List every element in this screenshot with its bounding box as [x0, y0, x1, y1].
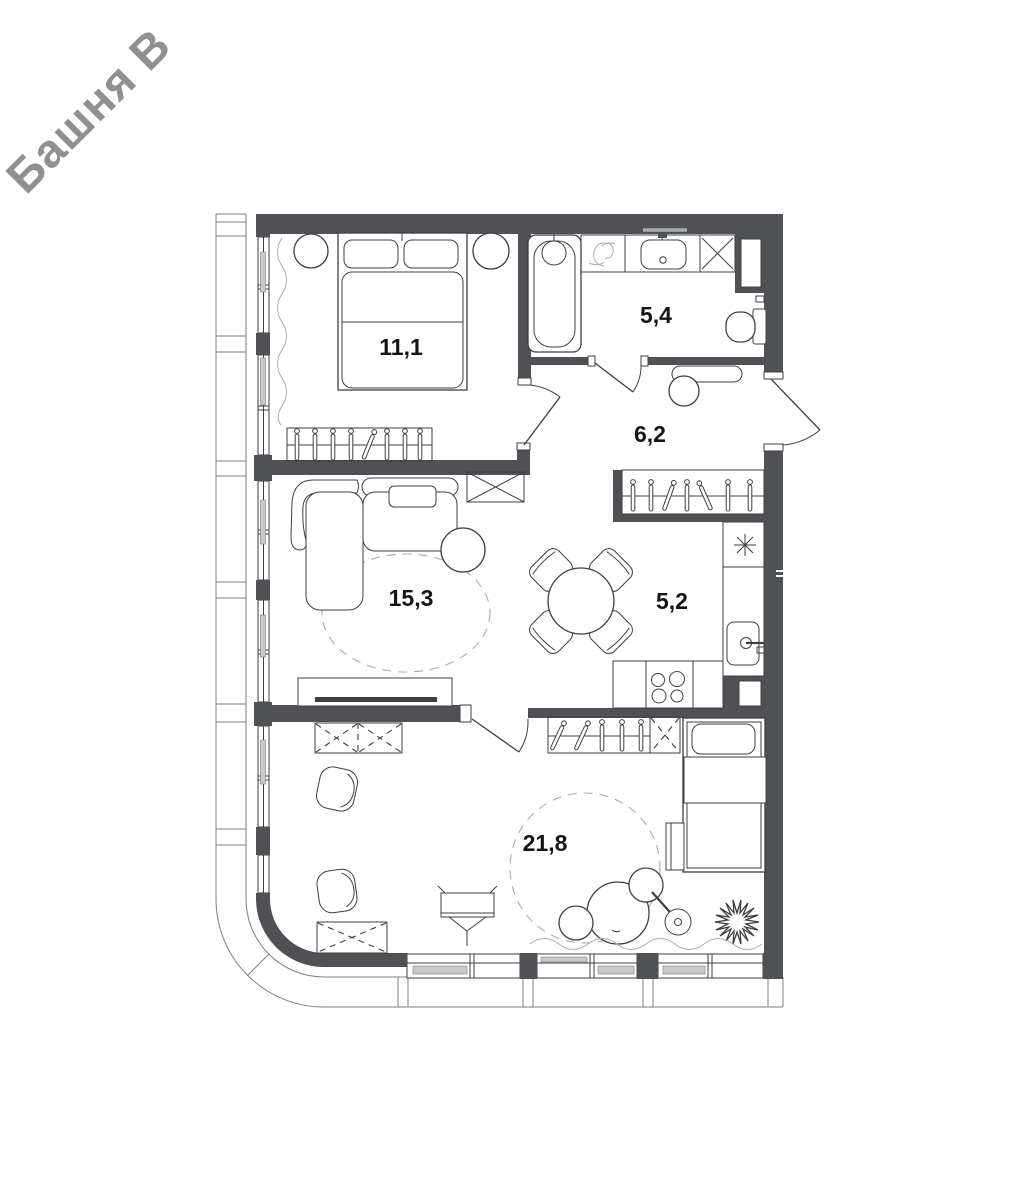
towel-dryer-icon — [589, 243, 615, 266]
towel-dryer-cell — [581, 235, 625, 272]
dining-table-icon — [526, 545, 635, 656]
facade-ledge — [216, 214, 783, 1007]
label-kitchen-area: 5,2 — [656, 588, 688, 614]
floor-lamp-icon — [438, 886, 497, 946]
windows-bottom — [407, 954, 763, 978]
single-bed-icon — [666, 718, 766, 872]
curtain-icon — [278, 238, 287, 425]
plant-icon — [715, 900, 759, 944]
vent-icon — [734, 534, 756, 556]
stool-icon — [669, 376, 699, 406]
label-bedroom2-area: 21,8 — [523, 830, 568, 856]
tower-watermark: Башня В — [0, 18, 181, 203]
bathtub-icon — [528, 233, 581, 352]
wardrobe-icon — [287, 428, 432, 461]
cabinet-icon — [315, 723, 402, 753]
cabinet-icon — [317, 922, 387, 953]
kitchen-counter-icon — [723, 522, 764, 676]
hall-wardrobe-icon — [622, 470, 764, 514]
label-bedroom-area: 11,1 — [379, 334, 423, 360]
armchair-icon — [315, 868, 358, 915]
toilet-icon — [726, 296, 766, 344]
floor-plan-page: 11,1 5,4 6,2 15,3 5,2 21,8 Башня В — [0, 0, 1015, 1200]
label-hallway-area: 6,2 — [634, 421, 666, 447]
cabinet-icon — [467, 472, 524, 502]
armchair-icon — [314, 765, 360, 814]
nightstand-icon — [473, 233, 509, 269]
bathroom-door — [588, 356, 648, 392]
entrance-door — [764, 372, 820, 451]
floor-plan: 11,1 5,4 6,2 15,3 5,2 21,8 Башня В — [0, 0, 1015, 1200]
wardrobe-icon — [548, 717, 680, 753]
nightstand-icon — [294, 234, 328, 268]
washing-machine-icon — [700, 235, 735, 272]
label-bathroom-area: 5,4 — [640, 302, 672, 328]
double-bed-icon — [338, 233, 467, 390]
label-living-area: 15,3 — [389, 585, 434, 611]
tv-stand-icon — [298, 678, 452, 706]
room-bathroom — [528, 230, 766, 352]
bedroom-door — [517, 378, 560, 450]
curtain-wave-icon — [530, 939, 762, 950]
side-table-icon — [441, 528, 485, 572]
bathroom-sink-icon — [625, 230, 700, 272]
stove-icon — [613, 661, 723, 708]
bedroom-2-door — [460, 705, 528, 752]
